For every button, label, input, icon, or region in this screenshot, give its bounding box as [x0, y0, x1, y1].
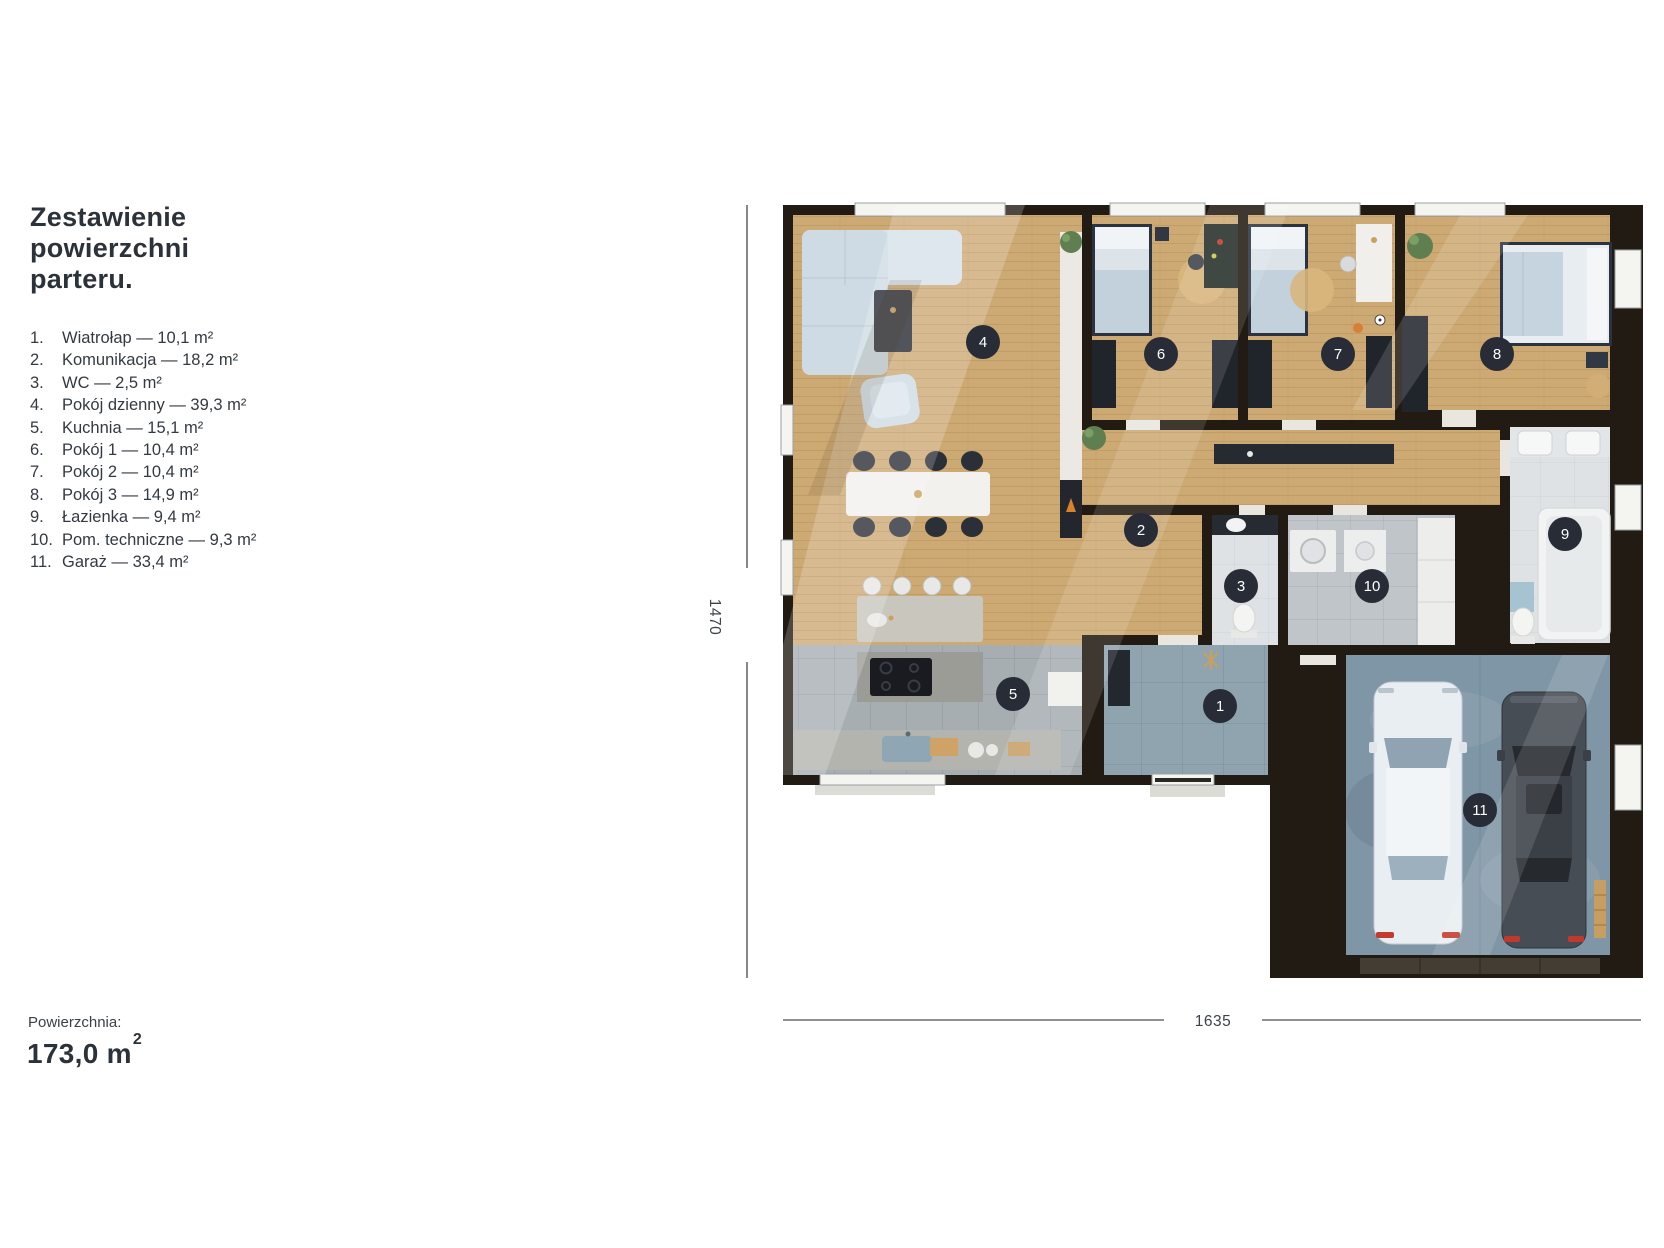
plant: [1082, 426, 1106, 450]
room-list-item: 8.Pokój 3 — 14,9 m²: [30, 484, 256, 506]
svg-text:6: 6: [1157, 346, 1165, 363]
basketball: [1353, 323, 1363, 333]
room-number: 8.: [30, 484, 62, 506]
room-badge-3: 3: [1224, 569, 1258, 603]
room-badge-8: 8: [1480, 337, 1514, 371]
total-area-label: Powierzchnia:: [28, 1014, 121, 1031]
sideboard: [1214, 444, 1394, 464]
svg-text:10: 10: [1364, 578, 1381, 595]
tv-wall-column: [1060, 231, 1082, 538]
room-badge-1: 1: [1203, 689, 1237, 723]
bed-room8: [1500, 242, 1612, 346]
dimension-height: 1470: [706, 205, 747, 978]
room-label: Garaż — 33,4 m²: [62, 553, 189, 571]
room-number: 6.: [30, 439, 62, 461]
room-list-item: 7.Pokój 2 — 10,4 m²: [30, 461, 256, 483]
room-number: 4.: [30, 394, 62, 416]
room-badge-6: 6: [1144, 337, 1178, 371]
wardrobe: [1092, 340, 1116, 408]
page: Zestawienie powierzchni parteru. 1.Wiatr…: [0, 0, 1664, 1248]
room-label: WC — 2,5 m²: [62, 374, 162, 392]
total-area-number: 173,0 m: [27, 1038, 132, 1069]
svg-text:8: 8: [1493, 346, 1501, 363]
room-list-item: 2.Komunikacja — 18,2 m²: [30, 349, 256, 371]
wardrobe: [1248, 340, 1272, 408]
svg-text:11: 11: [1472, 802, 1488, 819]
svg-text:7: 7: [1334, 346, 1342, 363]
room-badge-10: 10: [1355, 569, 1389, 603]
dimension-width-label: 1635: [1195, 1013, 1231, 1030]
room-number: 11.: [30, 551, 62, 573]
car-white: [1369, 682, 1467, 944]
svg-text:1: 1: [1216, 698, 1224, 715]
room-label: Łazienka — 9,4 m²: [62, 508, 200, 526]
room-badge-11: 11: [1463, 793, 1497, 827]
room-number: 9.: [30, 506, 62, 528]
floor-plan-svg: 1470 1635: [690, 190, 1650, 1050]
nightstand: [1155, 227, 1169, 241]
plant: [1060, 231, 1082, 253]
room-label: Pokój dzienny — 39,3 m²: [62, 396, 246, 414]
room-list-item: 1.Wiatrołap — 10,1 m²: [30, 327, 256, 349]
terrace-step: [815, 785, 935, 795]
room-number: 1.: [30, 327, 62, 349]
room-list-item: 11.Garaż — 33,4 m²: [30, 551, 256, 573]
room-list: 1.Wiatrołap — 10,1 m²2.Komunikacja — 18,…: [30, 327, 256, 573]
room-badge-2: 2: [1124, 513, 1158, 547]
room-badge-9: 9: [1548, 517, 1582, 551]
svg-text:4: 4: [979, 334, 987, 351]
room-badge-4: 4: [966, 325, 1000, 359]
garage-shelf: [1594, 880, 1606, 938]
room-number: 10.: [30, 529, 62, 551]
bed-room6: [1092, 224, 1152, 336]
room-label: Pom. techniczne — 9,3 m²: [62, 531, 256, 549]
room-label: Pokój 3 — 14,9 m²: [62, 486, 199, 504]
hob-counter: [857, 652, 983, 702]
entry-step: [1150, 785, 1225, 797]
room-label: Kuchnia — 15,1 m²: [62, 419, 203, 437]
room-number: 2.: [30, 349, 62, 371]
room-label: Wiatrołap — 10,1 m²: [62, 329, 213, 347]
room-number: 7.: [30, 461, 62, 483]
dimension-width: 1635: [783, 1013, 1641, 1030]
side-table: [1586, 374, 1610, 398]
room-list-item: 4.Pokój dzienny — 39,3 m²: [30, 394, 256, 416]
dimension-height-label: 1470: [706, 599, 723, 635]
room-list-item: 3.WC — 2,5 m²: [30, 372, 256, 394]
svg-text:2: 2: [1137, 522, 1145, 539]
room-number: 3.: [30, 372, 62, 394]
room-list-item: 6.Pokój 1 — 10,4 m²: [30, 439, 256, 461]
room-badge-7: 7: [1321, 337, 1355, 371]
page-title: Zestawienie powierzchni parteru.: [30, 202, 230, 295]
room-label: Pokój 1 — 10,4 m²: [62, 441, 199, 459]
room-number: 5.: [30, 417, 62, 439]
rug: [1290, 268, 1334, 312]
total-area-value: 173,0 m2: [27, 1038, 141, 1070]
room-label: Pokój 2 — 10,4 m²: [62, 463, 199, 481]
total-area-sup: 2: [133, 1031, 142, 1048]
room-badge-5: 5: [996, 677, 1030, 711]
room-list-item: 9.Łazienka — 9,4 m²: [30, 506, 256, 528]
room-list-item: 10.Pom. techniczne — 9,3 m²: [30, 529, 256, 551]
nightstand: [1586, 352, 1608, 368]
svg-text:5: 5: [1009, 686, 1017, 703]
room-list-item: 5.Kuchnia — 15,1 m²: [30, 417, 256, 439]
svg-text:9: 9: [1561, 526, 1569, 543]
front-door: [1155, 778, 1211, 782]
svg-text:3: 3: [1237, 578, 1245, 595]
room-label: Komunikacja — 18,2 m²: [62, 351, 238, 369]
